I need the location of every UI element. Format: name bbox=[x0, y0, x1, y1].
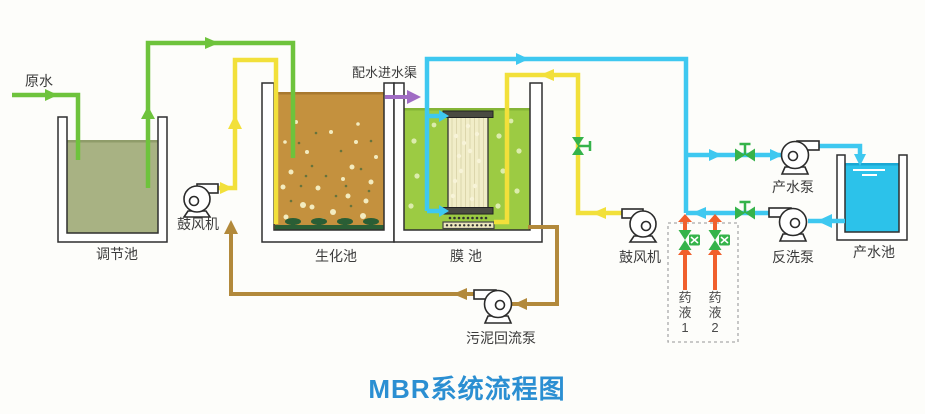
regulation-tank bbox=[58, 117, 167, 242]
blower-right-label: 鼓风机 bbox=[619, 250, 661, 265]
flow-arrow bbox=[228, 115, 242, 129]
blower-left-icon bbox=[184, 184, 218, 217]
product-pump-icon bbox=[782, 141, 820, 174]
product-water-surface bbox=[845, 163, 899, 166]
flow-arrow bbox=[205, 37, 219, 49]
chemical-2-valve bbox=[709, 230, 731, 250]
product-tank-water bbox=[845, 163, 899, 232]
blower-left-label: 鼓风机 bbox=[177, 217, 219, 232]
product-line-valve bbox=[735, 144, 755, 162]
flow-arrow bbox=[141, 106, 155, 119]
product-tank-label: 产水池 bbox=[853, 245, 895, 260]
mbr-flow-diagram: 原水 配水进水渠 调节池 鼓风机 生化池 膜 池 污泥回流泵 鼓风机 产水泵 反… bbox=[0, 0, 925, 414]
membrane-tank-label: 膜 池 bbox=[450, 249, 482, 264]
module-permeate-dots bbox=[449, 217, 488, 220]
water-surface-mark bbox=[853, 169, 885, 171]
chemical-dosing-pipes bbox=[678, 214, 722, 290]
blower-right-icon bbox=[622, 209, 656, 242]
raw-water-label: 原水 bbox=[25, 74, 53, 89]
biochemical-tank-label: 生化池 bbox=[315, 249, 357, 264]
membrane-tank bbox=[394, 83, 542, 242]
flow-arrow bbox=[514, 298, 527, 310]
flow-arrow bbox=[453, 288, 467, 300]
flow-arrow bbox=[540, 69, 554, 81]
water-surface-mark bbox=[862, 174, 877, 176]
backwash-line-valve bbox=[735, 202, 755, 220]
flow-arrow bbox=[592, 207, 606, 219]
flow-arrow bbox=[709, 149, 722, 161]
air-line-valve bbox=[572, 137, 590, 155]
backwash-pump-icon bbox=[769, 208, 807, 241]
membrane-module bbox=[443, 111, 494, 229]
flow-diagram-canvas bbox=[0, 0, 925, 414]
module-bottom-header bbox=[443, 208, 493, 215]
regulation-tank-label: 调节池 bbox=[96, 247, 138, 262]
flow-arrow bbox=[516, 53, 529, 65]
sludge-return-pump-label: 污泥回流泵 bbox=[466, 331, 536, 346]
chemical-1-valve bbox=[679, 230, 701, 250]
biochemical-tank-mixed-liquor bbox=[274, 92, 384, 230]
flow-arrow bbox=[45, 89, 58, 101]
biochemical-water-surface bbox=[274, 92, 384, 95]
inlet-channel-label: 配水进水渠 bbox=[352, 66, 417, 80]
page-title: MBR系统流程图 bbox=[368, 369, 565, 406]
flow-arrow bbox=[224, 220, 238, 234]
chemical-1-label: 药 液 1 bbox=[678, 290, 691, 335]
flow-arrow bbox=[692, 207, 706, 219]
membrane-water-surface bbox=[404, 108, 530, 111]
product-tank bbox=[837, 155, 907, 240]
sludge-return-pump-icon bbox=[474, 290, 512, 323]
module-top-header bbox=[443, 111, 493, 118]
flow-arrow bbox=[817, 214, 832, 228]
product-pump-label: 产水泵 bbox=[772, 180, 814, 195]
chemical-2-label: 药 液 2 bbox=[708, 290, 721, 335]
backwash-pump-label: 反洗泵 bbox=[772, 250, 814, 265]
regulation-tank-water bbox=[67, 140, 158, 233]
regulation-water-surface bbox=[67, 140, 158, 143]
flow-arrow bbox=[220, 182, 233, 194]
biochemical-tank bbox=[262, 83, 394, 242]
